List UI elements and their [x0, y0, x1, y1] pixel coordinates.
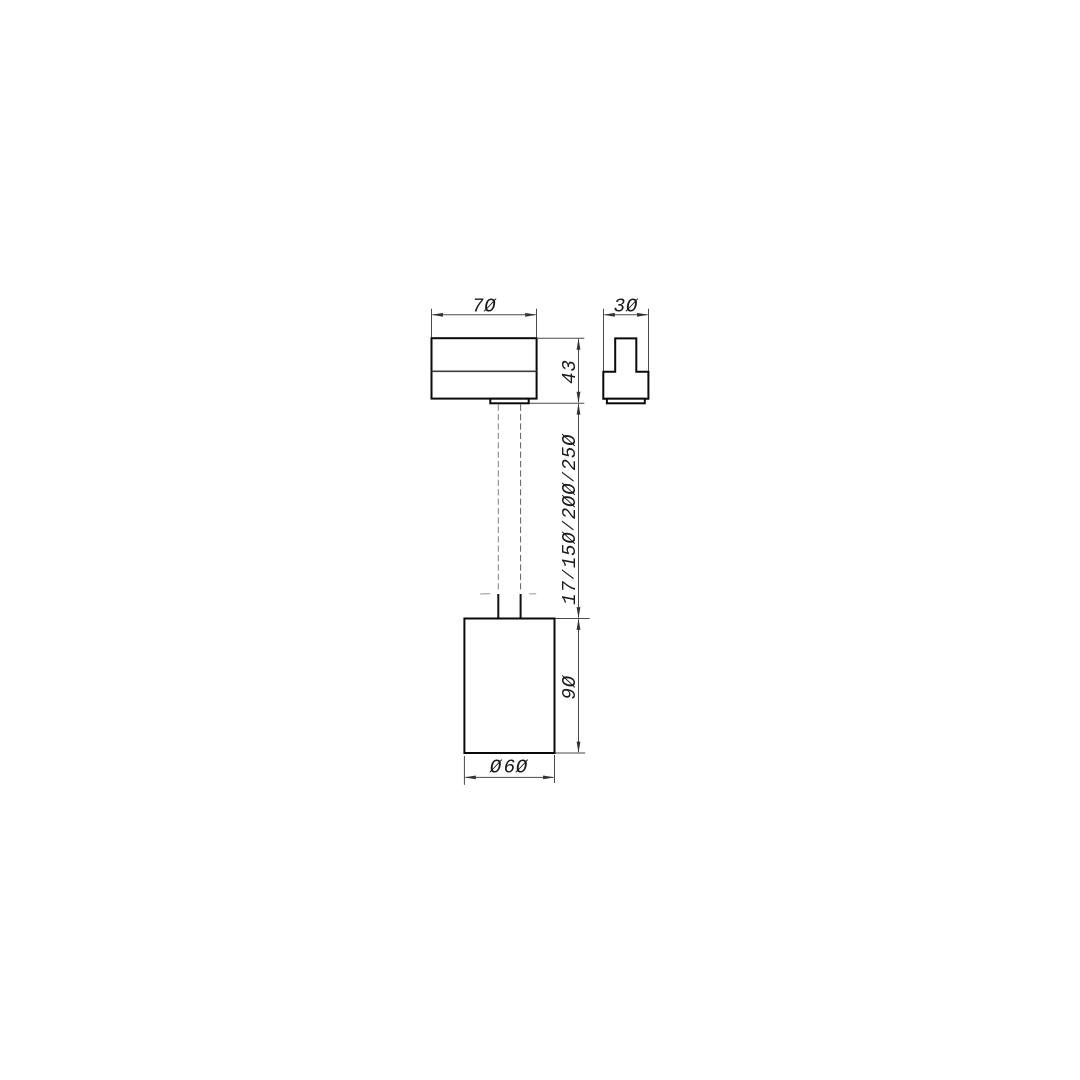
svg-text:3Ø: 3Ø	[614, 295, 639, 317]
svg-text:7Ø: 7Ø	[472, 295, 497, 317]
svg-text:43: 43	[559, 359, 581, 383]
svg-text:17/15Ø/2ØØ/25Ø: 17/15Ø/2ØØ/25Ø	[559, 433, 581, 605]
svg-text:Ø6Ø: Ø6Ø	[489, 757, 529, 779]
svg-text:9Ø: 9Ø	[559, 674, 581, 699]
